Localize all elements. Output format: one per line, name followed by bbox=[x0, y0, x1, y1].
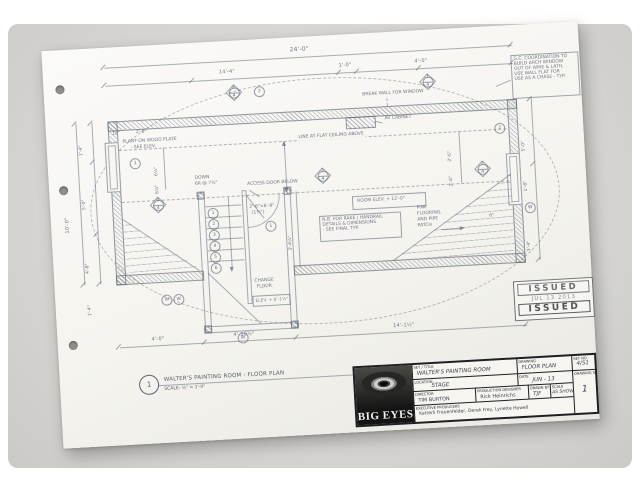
marker-bottom-label: 4 bbox=[226, 94, 242, 99]
dim-int-right-b: 2'-6" bbox=[450, 176, 456, 187]
scale-cell: SCALE AS SHOWN bbox=[550, 382, 574, 397]
dim-line bbox=[120, 325, 527, 349]
marker-top-label: 2 bbox=[474, 162, 490, 167]
dim-int-offset: 12" bbox=[112, 132, 120, 137]
elevation-marker-icon: 3 4 bbox=[314, 167, 331, 184]
gc-note-box: G.C. COORDINATION TO BUILD ARCH WINDOW O… bbox=[510, 51, 580, 99]
issued-stamp: ISSUED JUL 13 2013 ISSUED bbox=[513, 277, 595, 321]
sheet-no-value: 1 bbox=[582, 384, 596, 395]
pine-note-line: PATCH bbox=[418, 224, 432, 230]
drawn-value: TJF bbox=[533, 390, 549, 397]
dim-tick bbox=[523, 321, 528, 327]
sheet-no-cell: DRAWING NO. 1 bbox=[572, 369, 597, 413]
wild-wall-tag: W bbox=[161, 294, 173, 306]
dim-top-right: 4'-0" bbox=[414, 59, 427, 65]
elev-box: ELEV. + 8'-1½" bbox=[252, 294, 291, 307]
dim-top-left: 14'-4" bbox=[219, 70, 236, 76]
elevation-marker-icon: A 4 bbox=[225, 84, 242, 101]
dim-bottom-right: 14'-1½" bbox=[393, 323, 415, 330]
dim-top-mid: 1'-0" bbox=[338, 63, 351, 69]
hole-punch bbox=[55, 85, 64, 94]
elevation-marker-icon: 4 4 bbox=[150, 197, 167, 214]
dim-tick bbox=[507, 42, 512, 48]
marker-top-label: 3 bbox=[314, 169, 330, 174]
location-label: LOCATION bbox=[414, 380, 432, 385]
wall-post bbox=[196, 191, 204, 199]
dim-int-stack-a: 6¼" bbox=[155, 166, 160, 176]
elev8-note: ELEV. + 8'-1½" bbox=[255, 297, 291, 303]
dim-right-mid: 1'-8" bbox=[524, 181, 530, 192]
dim-bottom-left: 4'-0" bbox=[151, 337, 164, 343]
sheet-label: DRAWING NO. bbox=[574, 371, 597, 377]
set-no-value: 4/51 bbox=[576, 360, 593, 367]
eye-icon bbox=[361, 370, 407, 394]
dim-right-lower: 3'-4" bbox=[528, 240, 534, 251]
dim-bottom-mid: 4'-10½" bbox=[233, 332, 255, 339]
marker-top-label: 4 bbox=[150, 199, 166, 204]
elevation-marker-icon: 2 4 bbox=[474, 160, 491, 177]
dim-int-door: 2'-6" bbox=[136, 131, 147, 137]
callout-number: 1 bbox=[139, 374, 160, 395]
dim-int-right-a: 2'-6" bbox=[449, 151, 455, 162]
room-elev-note: ROOM ELEV. + 12'-0" bbox=[357, 196, 429, 205]
wall-post bbox=[291, 320, 299, 328]
arrowhead-icon bbox=[281, 141, 285, 146]
dim-left-upper: 5'-0" bbox=[83, 199, 89, 210]
wall-post bbox=[204, 325, 212, 333]
dim-left-outer: 10'-0" bbox=[65, 217, 71, 234]
nb-note-box: N.B. FOR RAKE / HANDRAIL DETAILS & DIMEN… bbox=[319, 211, 402, 242]
marker-top-label: 1 bbox=[419, 75, 435, 80]
marker-top-label: A bbox=[226, 86, 242, 91]
issued-stamp-bottom: ISSUED bbox=[518, 300, 591, 316]
date-label: DATE bbox=[519, 375, 529, 380]
set-no-cell: SET NO. 4/51 bbox=[571, 355, 595, 370]
marker-bottom-label: 4 bbox=[420, 83, 436, 88]
dim-left-lower: 4'-8" bbox=[86, 263, 92, 274]
big-eyes-logo: BIG EYES bbox=[354, 365, 414, 425]
drawing-scale: SCALE: ½" = 1'-0" bbox=[164, 386, 205, 393]
drawn-cell: DRAWN BY TJF bbox=[528, 383, 551, 398]
dim-right-upper: 5'-0" bbox=[522, 141, 528, 152]
drawing-sheet: 24'-0" 14'-4" 1'-0" 4'-0" A 4 2 1 4 G.C.… bbox=[41, 21, 599, 448]
elevation-marker-icon: 1 4 bbox=[419, 73, 436, 90]
logo-text: BIG EYES bbox=[357, 408, 415, 423]
wall-post bbox=[283, 187, 291, 195]
hole-punch bbox=[59, 186, 68, 195]
marker-bottom-label: 4 bbox=[475, 170, 491, 175]
hole-punch bbox=[69, 341, 78, 350]
dim-left-bottom: 1'-4" bbox=[89, 305, 95, 316]
dim-left-top: 1'-4" bbox=[80, 145, 86, 156]
marker-bottom-label: 4 bbox=[150, 206, 166, 211]
window-inner bbox=[108, 145, 118, 189]
av-cabinet bbox=[345, 116, 376, 130]
door-size-line: (1¾") bbox=[252, 211, 265, 217]
dim-stair-width: 3'-4¼" bbox=[289, 235, 295, 250]
dim-top-overall: 24'-0" bbox=[289, 46, 309, 54]
leader-line bbox=[496, 80, 511, 87]
marker-bottom-label: 4 bbox=[315, 177, 331, 182]
dim-tri-offset: 6" bbox=[489, 214, 494, 219]
title-block: BIG EYES SET / TITLE WALTER'S PAINTING R… bbox=[352, 353, 599, 428]
scale-value: AS SHOWN bbox=[552, 389, 572, 395]
change-floor-line: FLOOR bbox=[257, 285, 272, 291]
dim-int-stack-b: 6¼" bbox=[156, 184, 161, 194]
arrowhead-icon bbox=[229, 267, 233, 272]
